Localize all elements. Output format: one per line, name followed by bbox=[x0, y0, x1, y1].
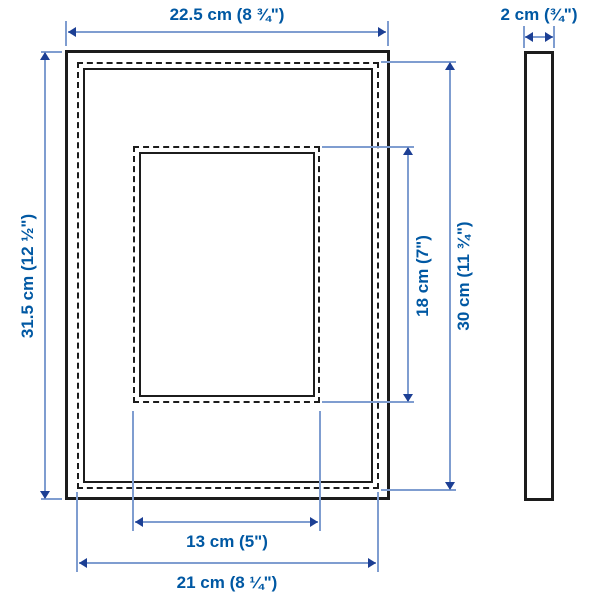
dimension-line bbox=[68, 31, 386, 33]
dimension-diagram: 22.5 cm (8 ¾") 2 cm (¾") 31.5 cm (12 ½")… bbox=[0, 0, 600, 600]
mat-opening-edge bbox=[139, 152, 315, 397]
extension-line bbox=[553, 26, 555, 48]
dim-depth-label: 2 cm (¾") bbox=[469, 5, 600, 25]
dimension-line bbox=[44, 53, 46, 498]
dim-opening-height-label: 18 cm (7") bbox=[413, 176, 433, 376]
extension-line bbox=[319, 411, 321, 531]
extension-line bbox=[65, 21, 67, 46]
arrowhead-down-icon bbox=[403, 394, 413, 402]
dim-picture-width-label: 21 cm (8 ¼") bbox=[102, 573, 352, 593]
arrowhead-left-icon bbox=[79, 558, 87, 568]
arrowhead-up-icon bbox=[40, 52, 50, 60]
dim-picture-height-label: 30 cm (11 ¾") bbox=[454, 176, 474, 376]
leader-line bbox=[322, 401, 414, 403]
arrowhead-left-icon bbox=[68, 27, 76, 37]
dim-outer-width-label: 22.5 cm (8 ¾") bbox=[102, 5, 352, 25]
extension-line bbox=[377, 492, 379, 572]
dimension-line bbox=[449, 63, 451, 489]
extension-line bbox=[387, 21, 389, 46]
dimension-line bbox=[79, 562, 376, 564]
arrowhead-right-icon bbox=[368, 558, 376, 568]
arrowhead-left-icon bbox=[525, 32, 533, 42]
dimension-line bbox=[407, 148, 409, 401]
arrowhead-right-icon bbox=[310, 517, 318, 527]
dim-opening-width-label: 13 cm (5") bbox=[102, 532, 352, 552]
arrowhead-right-icon bbox=[545, 32, 553, 42]
dimension-line bbox=[135, 521, 318, 523]
extension-line bbox=[76, 492, 78, 572]
arrowhead-up-icon bbox=[445, 62, 455, 70]
leader-line bbox=[322, 146, 414, 148]
extension-line bbox=[132, 411, 134, 531]
frame-side-view bbox=[524, 51, 554, 501]
arrowhead-up-icon bbox=[403, 147, 413, 155]
arrowhead-down-icon bbox=[40, 491, 50, 499]
arrowhead-down-icon bbox=[445, 482, 455, 490]
dim-outer-height-label: 31.5 cm (12 ½") bbox=[18, 176, 38, 376]
arrowhead-right-icon bbox=[378, 27, 386, 37]
arrowhead-left-icon bbox=[135, 517, 143, 527]
